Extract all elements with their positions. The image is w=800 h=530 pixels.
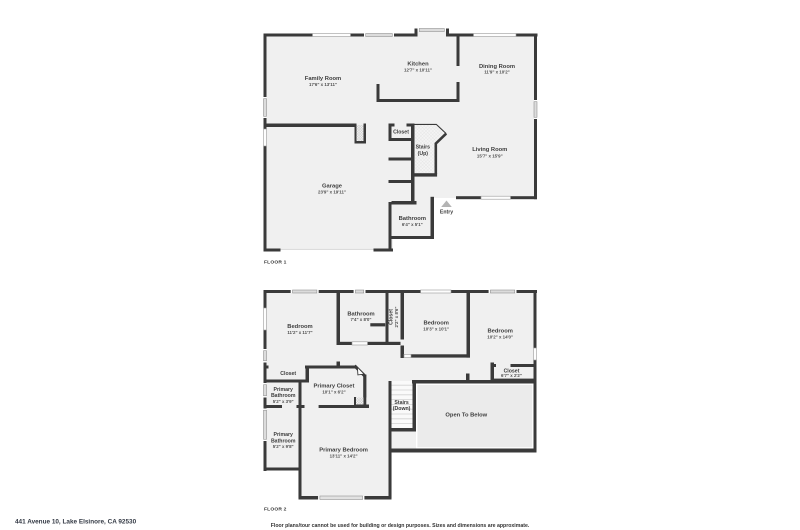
svg-text:10'3" x 10'1": 10'3" x 10'1" <box>423 326 449 331</box>
svg-text:FLOOR 2: FLOOR 2 <box>264 507 287 513</box>
svg-text:Entry: Entry <box>440 210 453 216</box>
svg-text:Open To Below: Open To Below <box>445 413 487 419</box>
svg-text:(Down): (Down) <box>393 406 411 412</box>
svg-text:5'2" x 9'8": 5'2" x 9'8" <box>273 444 294 449</box>
svg-text:11'9" x 10'2": 11'9" x 10'2" <box>484 70 510 75</box>
svg-text:Stairs: Stairs <box>416 144 431 150</box>
svg-text:11'2" x 11'7": 11'2" x 11'7" <box>287 330 312 335</box>
svg-text:10'1" x 6'2": 10'1" x 6'2" <box>322 389 345 394</box>
svg-text:15'7" x 15'9": 15'7" x 15'9" <box>477 154 503 159</box>
svg-text:7'4" x 8'0": 7'4" x 8'0" <box>351 317 372 322</box>
svg-text:Closet: Closet <box>280 371 296 377</box>
svg-text:2'2" x 8'6": 2'2" x 8'6" <box>394 307 399 328</box>
svg-text:Living Room: Living Room <box>472 147 507 153</box>
svg-text:6'7" x 2'2": 6'7" x 2'2" <box>501 373 522 378</box>
svg-text:6'4" x 5'1": 6'4" x 5'1" <box>402 222 423 227</box>
svg-text:10'2" x 14'0": 10'2" x 14'0" <box>487 335 513 340</box>
svg-text:12'7" x 10'11": 12'7" x 10'11" <box>404 68 432 73</box>
svg-text:Primary: Primary <box>274 387 293 393</box>
svg-text:FLOOR 1: FLOOR 1 <box>264 259 287 265</box>
svg-text:Bedroom: Bedroom <box>423 320 448 326</box>
svg-text:441 Avenue 10, Lake Elsinore,: 441 Avenue 10, Lake Elsinore, CA 92530 <box>15 519 137 526</box>
svg-text:17'6" x 13'11": 17'6" x 13'11" <box>309 82 337 87</box>
svg-text:Floor plans/tour cannot be use: Floor plans/tour cannot be used for buil… <box>271 523 530 529</box>
svg-text:(Up): (Up) <box>418 151 429 157</box>
svg-text:Closet: Closet <box>393 130 409 136</box>
svg-text:5'2" x 3'9": 5'2" x 3'9" <box>273 399 294 404</box>
svg-text:13'11" x 14'2": 13'11" x 14'2" <box>330 454 358 459</box>
svg-text:23'9" x 19'11": 23'9" x 19'11" <box>318 189 346 194</box>
svg-text:Primary: Primary <box>274 432 293 438</box>
